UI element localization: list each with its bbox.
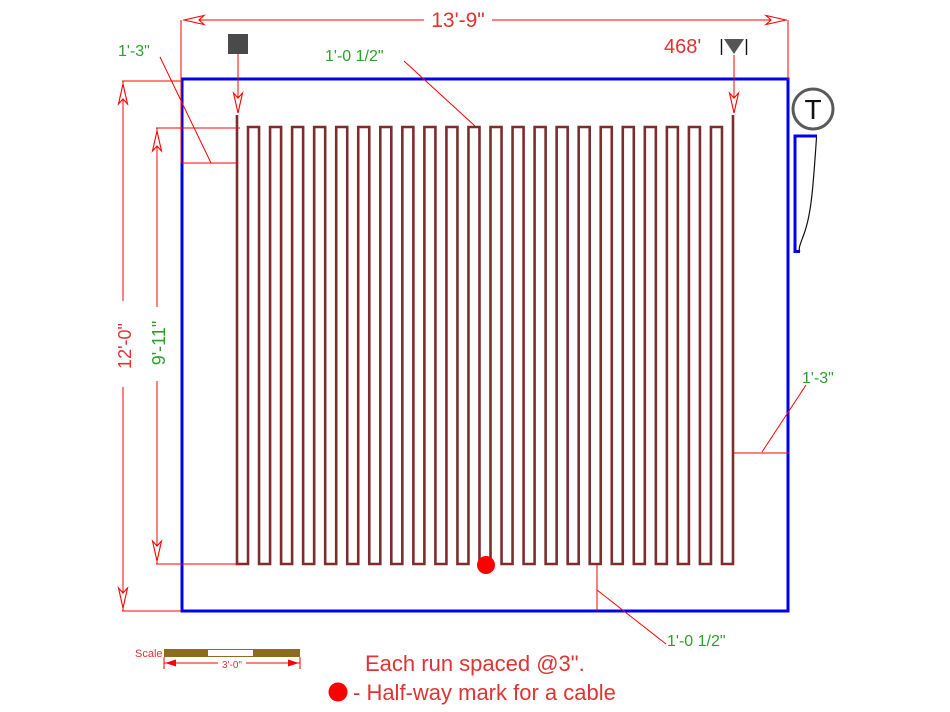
note-run-spacing: Each run spaced @3".: [365, 651, 585, 676]
left-offset-label: 1'-3": [118, 43, 150, 60]
cable-end-triangle-marker: [724, 39, 744, 54]
bottom-offset-label: 1'-0 1/2": [667, 633, 726, 650]
cad-drawing-canvas: 13'-9" 12'-0" 9'-11" 1'-3" 1'-0 1/2" 1'-…: [0, 0, 950, 712]
cable-length-label: 468': [664, 36, 701, 58]
halfway-mark-dot: [477, 556, 495, 574]
leader-top-offset: [404, 61, 475, 126]
dim-width-label: 13'-9": [431, 9, 485, 32]
dim-height-label: 12'-0": [115, 323, 135, 369]
dim-cable-height-label: 9'-11": [149, 321, 169, 366]
scale-bar-gap: [208, 650, 253, 656]
leader-right-offset: [733, 385, 806, 453]
floor-heating-plan: 13'-9" 12'-0" 9'-11" 1'-3" 1'-0 1/2" 1'-…: [0, 0, 950, 712]
right-offset-label: 1'-3": [802, 370, 834, 387]
heating-cable-path: [237, 115, 733, 564]
leader-bottom-offset: [597, 565, 666, 644]
thermostat-label: T: [804, 94, 821, 125]
sensor-bracket: [795, 136, 817, 252]
scale-arrow-right-icon: [288, 660, 299, 667]
legend-halfway-dot-icon: [329, 683, 348, 702]
sensor-wire: [799, 138, 816, 252]
leader-left-offset: [160, 57, 238, 163]
scale-arrow-left-icon: [165, 660, 176, 667]
note-halfway-mark: - Half-way mark for a cable: [353, 680, 616, 705]
scale-value-label: 3'-0": [222, 660, 242, 671]
top-offset-label: 1'-0 1/2": [325, 48, 384, 65]
cable-start-box-marker: [228, 34, 248, 54]
room-outline: [182, 79, 788, 611]
scale-label: Scale: [135, 648, 163, 660]
